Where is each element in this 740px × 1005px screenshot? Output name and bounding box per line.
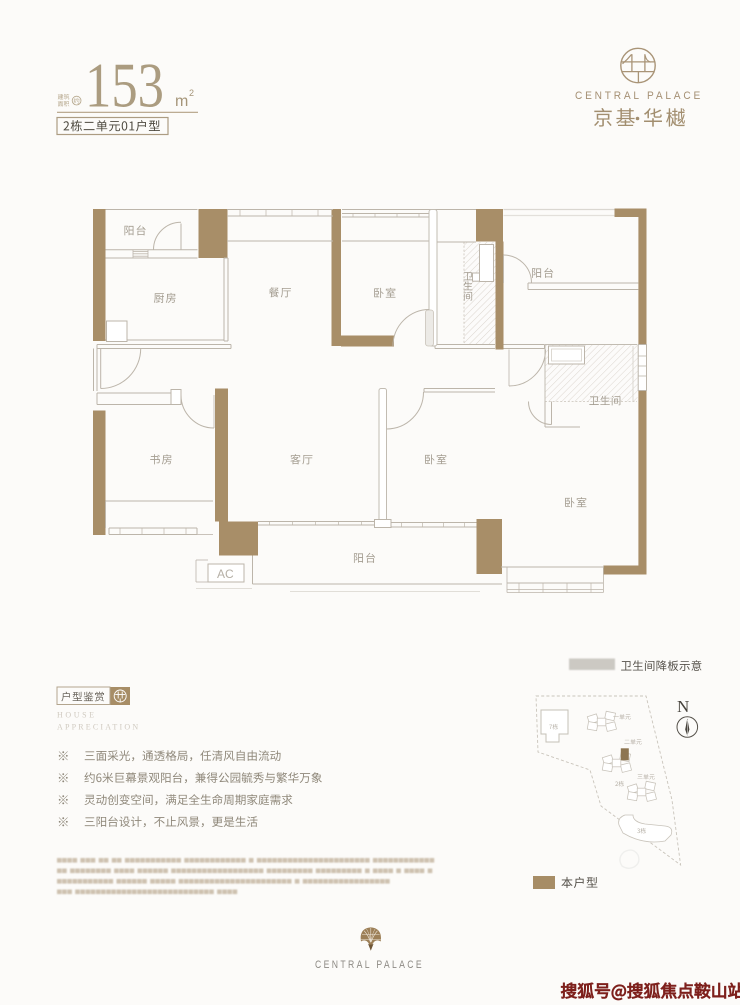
- svg-text:APPRECIATION: APPRECIATION: [57, 723, 140, 732]
- svg-text:HOUSE: HOUSE: [57, 711, 97, 720]
- svg-text:m: m: [175, 93, 188, 110]
- svg-text:CENTRAL PALACE: CENTRAL PALACE: [575, 90, 703, 102]
- svg-text:CENTRAL PALACE: CENTRAL PALACE: [315, 959, 424, 971]
- svg-text:N: N: [677, 697, 689, 716]
- svg-text:153: 153: [85, 50, 164, 121]
- svg-text:AC: AC: [217, 567, 234, 581]
- svg-text:2: 2: [189, 88, 194, 98]
